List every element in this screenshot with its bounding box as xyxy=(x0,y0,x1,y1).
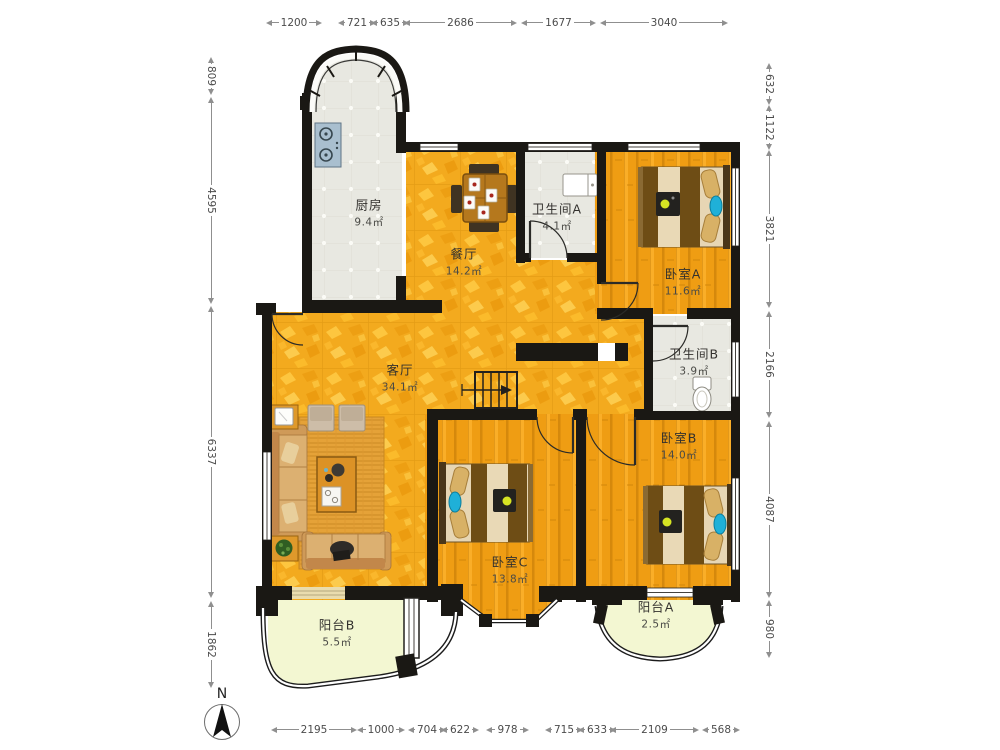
balcony-b-floor xyxy=(268,600,406,684)
dimension-1000: 1000 xyxy=(357,723,405,736)
plant-side-table xyxy=(271,536,298,561)
dimension-978: 978 xyxy=(486,723,529,736)
dimension-6337: 6337 xyxy=(205,306,218,598)
bathroom-b-floor xyxy=(647,316,737,418)
compass-north-label: N xyxy=(217,686,227,702)
dimension-1122: 1122 xyxy=(763,105,776,148)
dimension-2109: 2109 xyxy=(610,723,699,736)
stove xyxy=(315,123,341,167)
dimension-633: 633 xyxy=(578,723,607,736)
dimension-1862: 1862 xyxy=(205,601,218,688)
dimension-704: 704 xyxy=(408,723,438,736)
bed-c xyxy=(439,462,533,544)
dimension-2686: 2686 xyxy=(404,16,517,29)
dimension-1200: 1200 xyxy=(266,16,322,29)
bathroom-a-washer xyxy=(563,174,597,196)
dimension-568: 568 xyxy=(702,723,728,736)
tv-side-table xyxy=(271,405,298,429)
bed-a xyxy=(638,165,730,249)
dimension-4595: 4595 xyxy=(205,97,218,304)
dimension-632: 632 xyxy=(763,63,776,105)
dimension-809: 809 xyxy=(205,57,218,95)
bathroom-b-toilet xyxy=(693,377,711,411)
bathroom-a-floor xyxy=(520,148,600,258)
dimension-4087: 4087 xyxy=(763,421,776,598)
floor-plan-page: N 厨房9.4㎡餐厅14.2㎡卫生间A4.1㎡卧室A11.6㎡卫生间B3.9㎡客… xyxy=(0,0,1000,750)
dimension-1677: 1677 xyxy=(521,16,596,29)
dimension-3040: 3040 xyxy=(600,16,728,29)
dimension-2195: 2195 xyxy=(271,723,357,736)
dimension-2166: 2166 xyxy=(763,311,776,418)
hall-cabinet-gap xyxy=(598,343,615,361)
floor-plan-drawing xyxy=(0,0,1000,750)
dimension-635: 635 xyxy=(371,16,403,29)
compass-icon xyxy=(205,704,240,740)
kitchen-floor xyxy=(305,55,402,305)
bed-b xyxy=(643,484,734,566)
dimension-3821: 3821 xyxy=(763,150,776,308)
balcony-b-threshold xyxy=(292,587,345,599)
dimension-622: 622 xyxy=(441,723,469,736)
dimension-980: 980 xyxy=(763,600,776,658)
dimension-715: 715 xyxy=(545,723,576,736)
dimension-721: 721 xyxy=(338,16,371,29)
